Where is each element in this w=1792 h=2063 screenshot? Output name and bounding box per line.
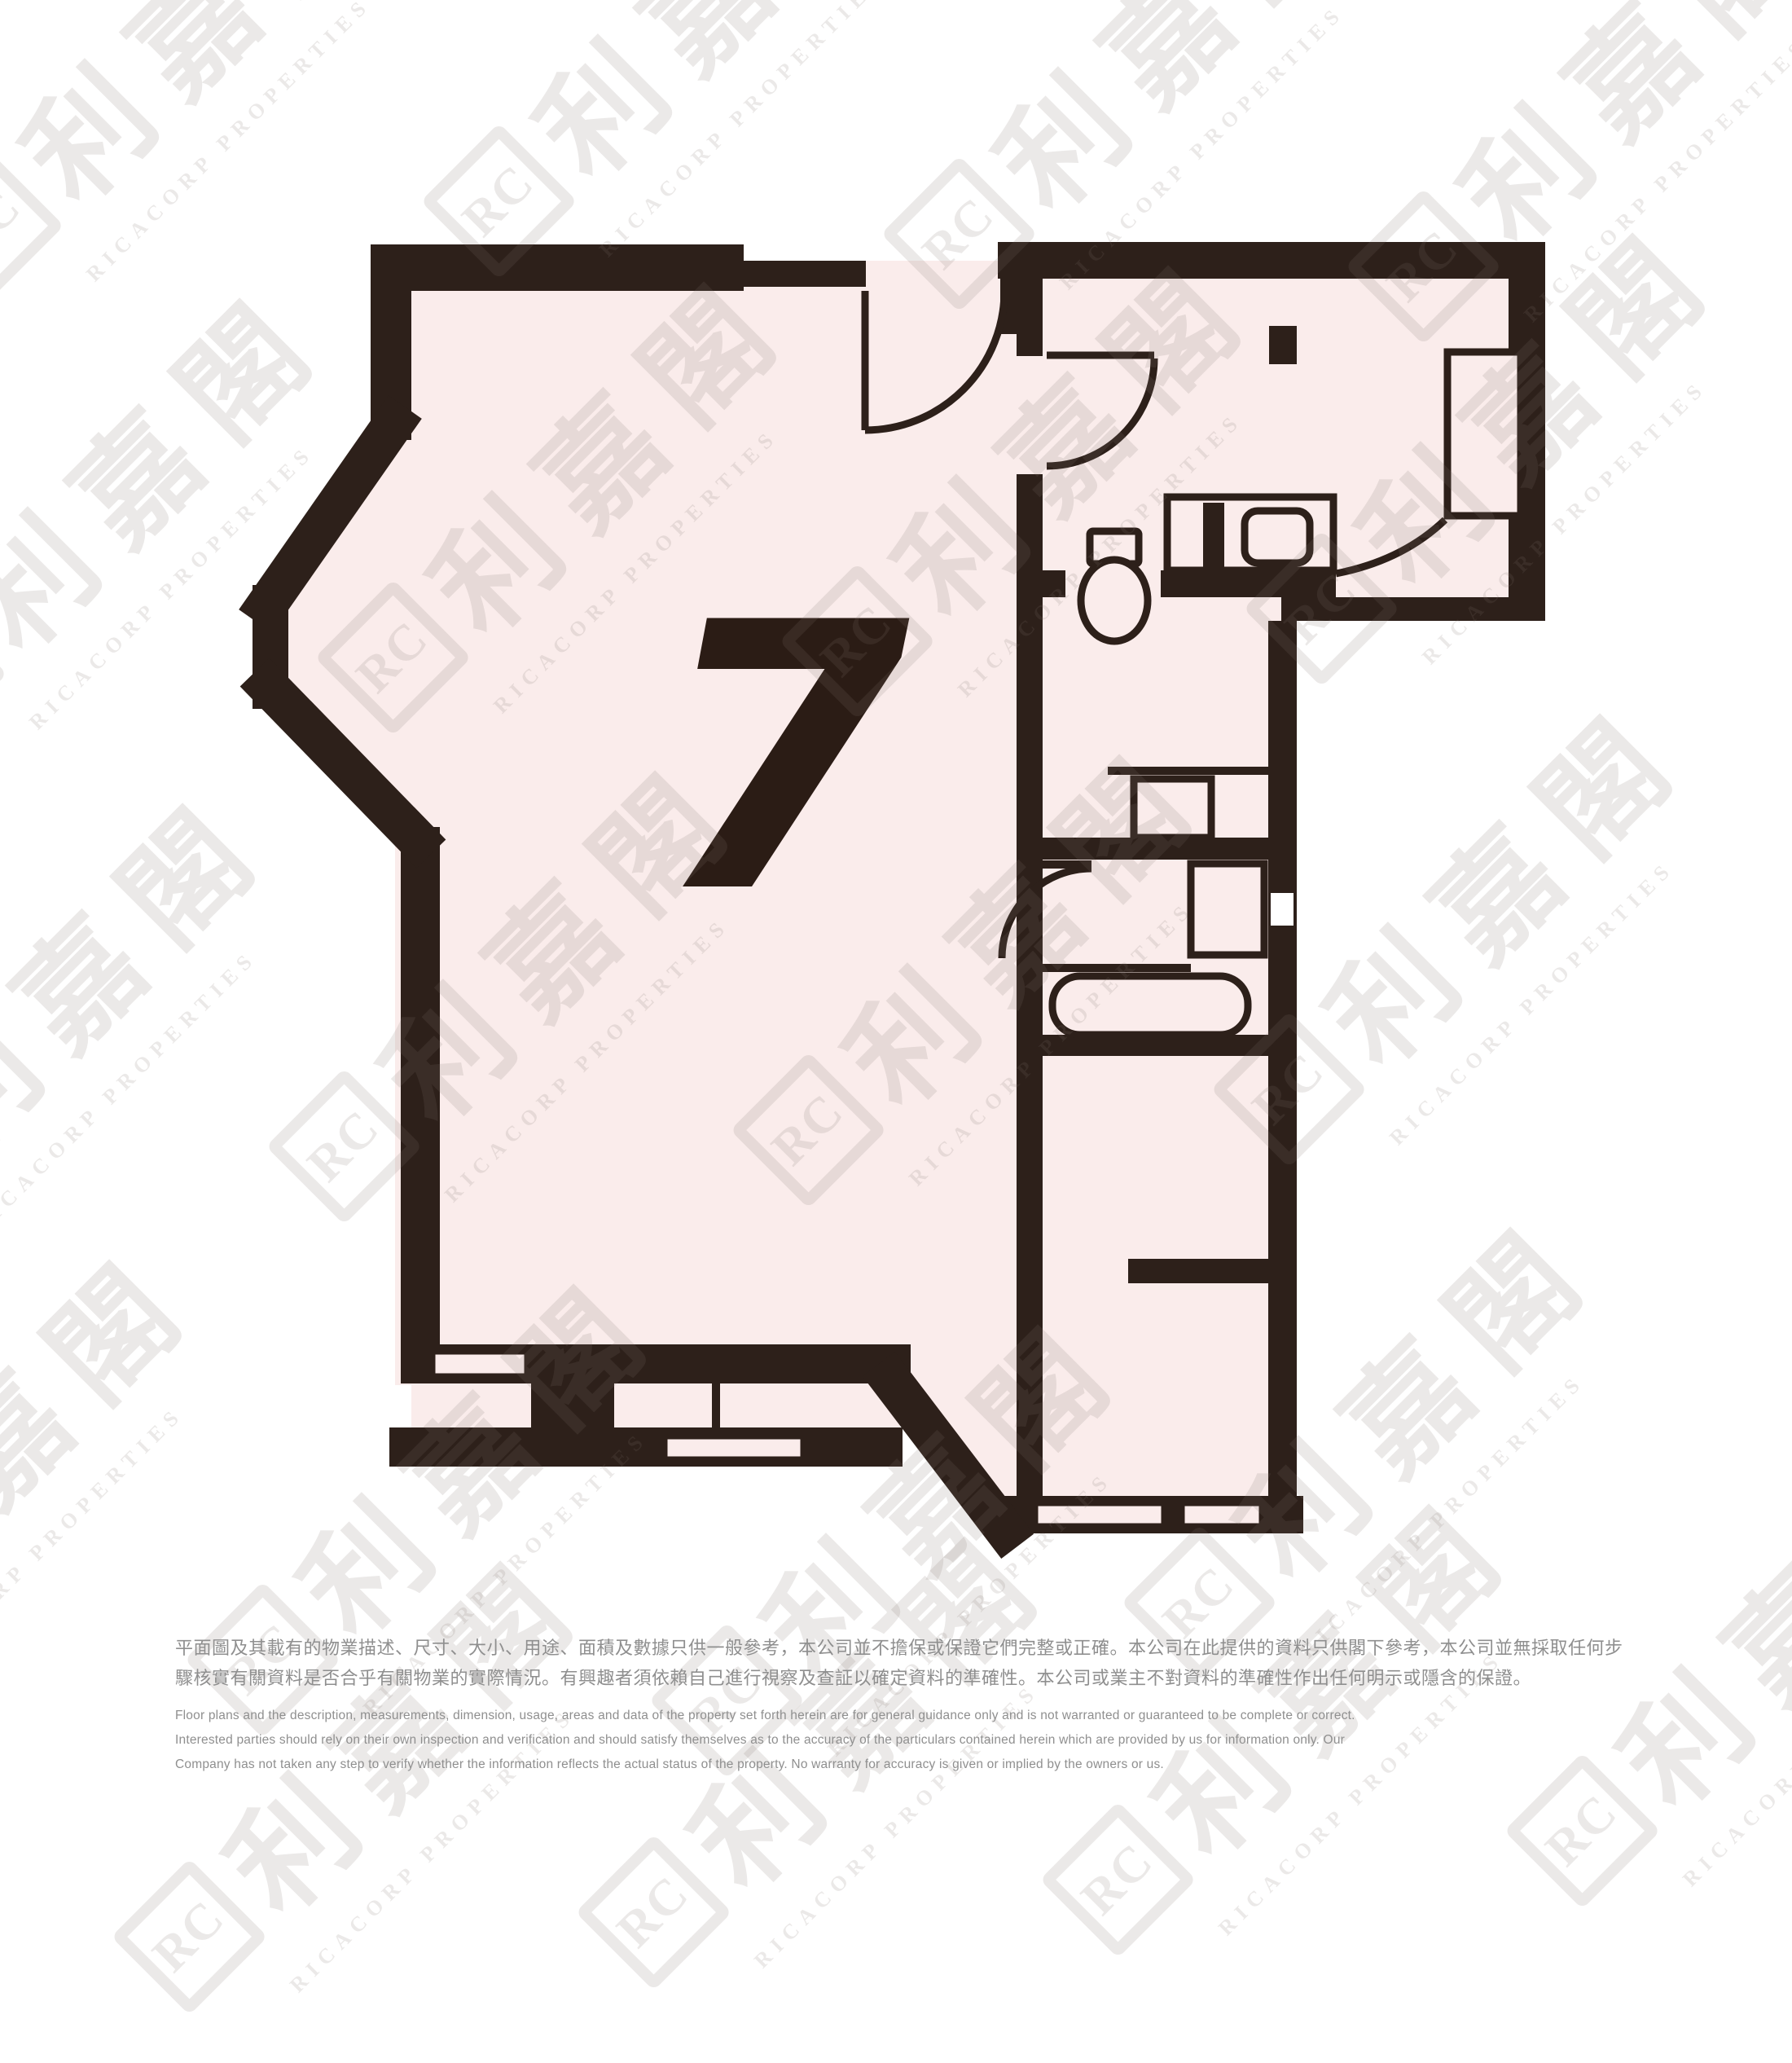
disclaimer-en: Floor plans and the description, measure…: [175, 1704, 1788, 1777]
disclaimer-en-line-3: Company has not taken any step to verify…: [175, 1753, 1788, 1777]
sink-counter: [1167, 497, 1333, 570]
bathtub: [1052, 976, 1248, 1035]
washer: [1134, 779, 1211, 838]
disclaimer-en-line-2: Interested parties should rely on their …: [175, 1728, 1788, 1753]
window-sill: [1181, 1502, 1263, 1527]
sink-basin: [1245, 511, 1310, 563]
window-sill: [1034, 1502, 1165, 1527]
disclaimer-zh-line-2: 驟核實有關資料是否合乎有關物業的實際情況。有興趣者須依賴自己進行視察及查証以確定…: [175, 1663, 1788, 1693]
shower-cabinet: [1191, 864, 1264, 955]
bay-window-area: [411, 1383, 900, 1427]
toilet: [1081, 531, 1148, 641]
ricacorp-logo-icon: RC: [1039, 1801, 1196, 1958]
window-sill: [664, 1436, 804, 1460]
ricacorp-logo-icon: RC: [111, 1858, 267, 2015]
disclaimer: 平面圖及其載有的物業描述、尺寸、大小、用途、面積及數據只供一般參考，本公司並不擔…: [175, 1633, 1788, 1777]
disclaimer-zh-line-1: 平面圖及其載有的物業描述、尺寸、大小、用途、面積及數據只供一般參考，本公司並不擔…: [175, 1633, 1788, 1663]
window-sill: [432, 1351, 528, 1377]
disclaimer-en-line-1: Floor plans and the description, measure…: [175, 1704, 1788, 1728]
wardrobe: [1447, 352, 1521, 516]
unit-number-label: 7: [643, 580, 920, 939]
ricacorp-logo-icon: RC: [575, 1834, 731, 1990]
